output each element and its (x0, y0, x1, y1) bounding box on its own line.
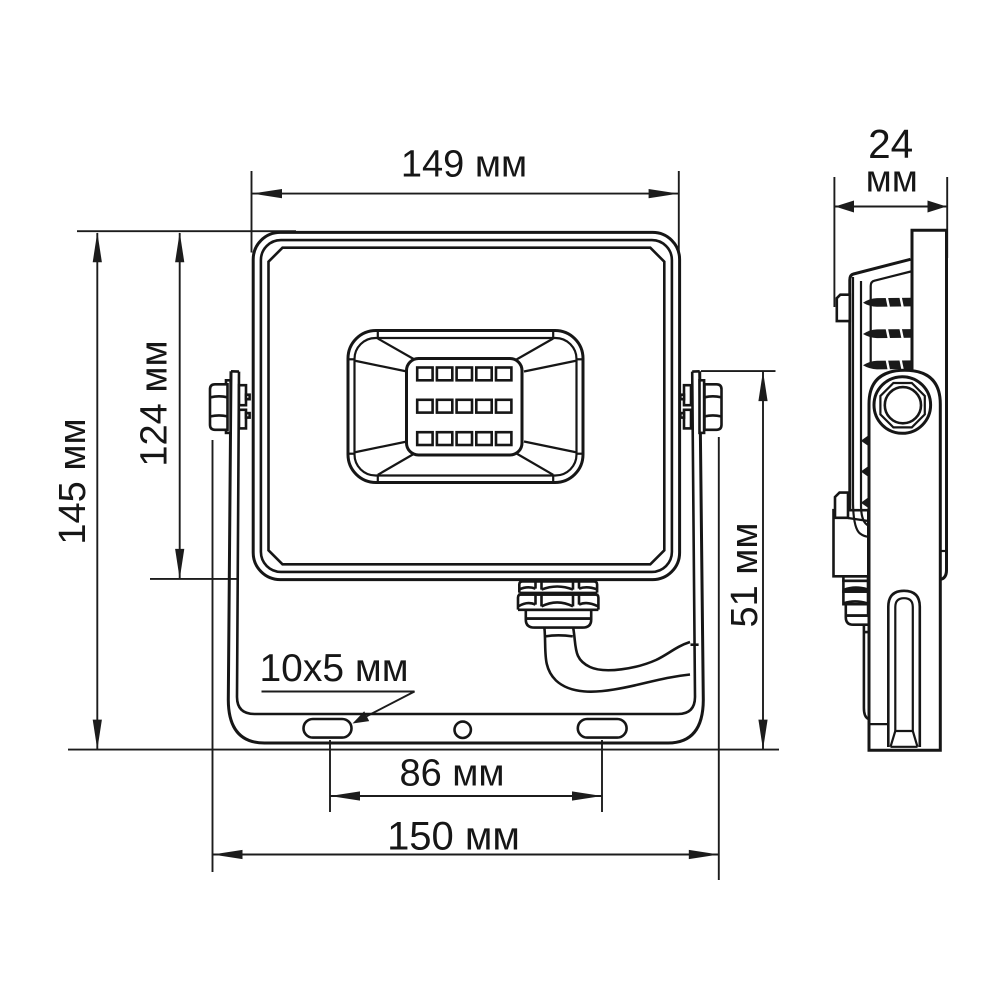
svg-text:мм: мм (866, 159, 918, 201)
svg-text:124 мм: 124 мм (134, 340, 176, 466)
svg-text:145 мм: 145 мм (52, 418, 94, 544)
svg-text:149 мм: 149 мм (401, 144, 527, 186)
svg-text:150 мм: 150 мм (387, 815, 520, 859)
svg-text:51 мм: 51 мм (724, 522, 766, 627)
svg-text:10х5 мм: 10х5 мм (259, 647, 408, 690)
svg-text:86 мм: 86 мм (399, 753, 504, 795)
